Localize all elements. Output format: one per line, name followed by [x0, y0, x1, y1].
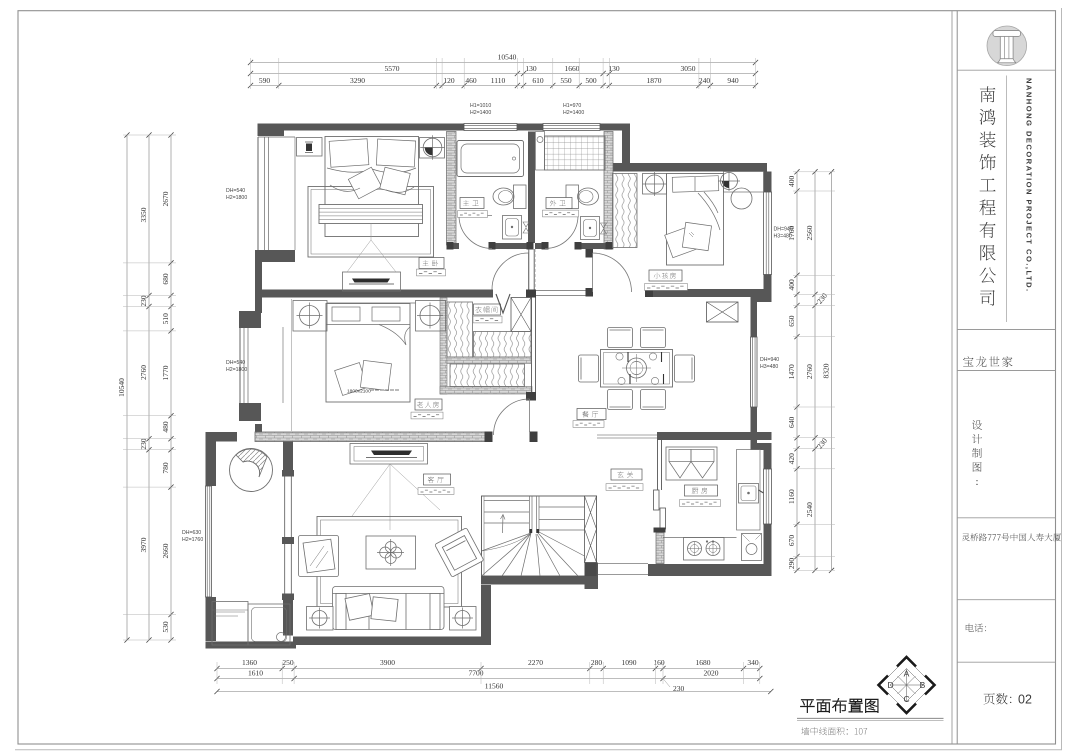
svg-text:1110: 1110: [491, 76, 506, 85]
svg-text:NANHONG DECORATION PROJECT CO.: NANHONG DECORATION PROJECT CO.,LTD.: [1025, 78, 1034, 293]
svg-text:1160: 1160: [787, 489, 796, 504]
svg-text:8320: 8320: [822, 363, 831, 378]
svg-text:DH=630: DH=630: [182, 530, 201, 536]
svg-text:3970: 3970: [139, 537, 148, 552]
svg-text:400: 400: [787, 279, 796, 291]
svg-text:7700: 7700: [469, 669, 484, 678]
svg-text:230: 230: [139, 295, 148, 307]
svg-text:2020: 2020: [704, 669, 719, 678]
svg-text:340: 340: [747, 658, 759, 667]
svg-text:5570: 5570: [385, 64, 400, 73]
svg-text:3290: 3290: [350, 76, 365, 85]
svg-text:H2=1400: H2=1400: [563, 110, 584, 116]
svg-text:2660: 2660: [161, 543, 170, 558]
svg-text:3900: 3900: [380, 658, 395, 667]
svg-text:530: 530: [161, 621, 170, 633]
svg-text:DH=540: DH=540: [226, 360, 245, 366]
svg-text:1610: 1610: [248, 669, 263, 678]
svg-text:1360: 1360: [242, 658, 257, 667]
svg-text:1660: 1660: [565, 64, 580, 73]
svg-text:250: 250: [282, 658, 294, 667]
svg-text:10540: 10540: [117, 378, 126, 397]
svg-text:550: 550: [560, 76, 572, 85]
svg-text:670: 670: [787, 535, 796, 547]
svg-text:650: 650: [787, 315, 796, 327]
svg-text:460: 460: [465, 76, 477, 85]
svg-text:230: 230: [139, 438, 148, 450]
svg-text:3350: 3350: [139, 207, 148, 222]
svg-text:DH=940: DH=940: [760, 357, 779, 363]
svg-text:1090: 1090: [622, 658, 637, 667]
svg-text:02: 02: [1018, 693, 1032, 707]
svg-text:780: 780: [161, 462, 170, 474]
svg-text:2760: 2760: [805, 364, 814, 379]
svg-text:3050: 3050: [681, 64, 696, 73]
svg-text:10540: 10540: [498, 53, 517, 62]
svg-text:DH=940: DH=940: [774, 227, 793, 233]
svg-text:1870: 1870: [647, 76, 662, 85]
svg-text:290: 290: [787, 558, 796, 570]
svg-text:B: B: [920, 680, 926, 690]
svg-text:C: C: [903, 694, 909, 704]
svg-text:280: 280: [591, 658, 603, 667]
svg-text:H2=1400: H2=1400: [470, 110, 491, 116]
svg-text:D: D: [887, 680, 893, 690]
svg-text:2760: 2760: [139, 365, 148, 380]
svg-text:680: 680: [161, 273, 170, 285]
svg-text:11560: 11560: [485, 682, 504, 691]
svg-text:240: 240: [699, 76, 711, 85]
svg-text:1800x2100: 1800x2100: [347, 389, 371, 395]
svg-text:1680: 1680: [696, 658, 711, 667]
svg-text:1770: 1770: [161, 365, 170, 380]
svg-text:A: A: [904, 669, 910, 679]
svg-text:H3=480: H3=480: [760, 364, 778, 370]
svg-text::: :: [976, 476, 979, 488]
svg-text:2670: 2670: [161, 191, 170, 206]
svg-text:510: 510: [161, 313, 170, 325]
svg-text:130: 130: [525, 64, 537, 73]
svg-text:590: 590: [259, 76, 271, 85]
svg-text:2560: 2560: [805, 225, 814, 240]
svg-text:H2=1760: H2=1760: [182, 537, 203, 543]
svg-text:130: 130: [608, 64, 620, 73]
svg-text:2540: 2540: [805, 502, 814, 517]
svg-text:2270: 2270: [528, 658, 543, 667]
svg-text:DH=540: DH=540: [226, 188, 245, 194]
svg-text:500: 500: [585, 76, 597, 85]
svg-text:940: 940: [727, 76, 739, 85]
svg-text:610: 610: [532, 76, 544, 85]
svg-text:420: 420: [787, 453, 796, 465]
svg-text:H1=1010: H1=1010: [470, 103, 491, 109]
svg-text:120: 120: [443, 76, 455, 85]
svg-text:H3=480: H3=480: [774, 234, 792, 240]
svg-text:480: 480: [161, 421, 170, 433]
svg-text:640: 640: [787, 417, 796, 429]
svg-text:H1=970: H1=970: [563, 103, 581, 109]
svg-text:1470: 1470: [787, 364, 796, 379]
svg-text:H2=1800: H2=1800: [226, 195, 247, 201]
svg-text:400: 400: [787, 176, 796, 188]
